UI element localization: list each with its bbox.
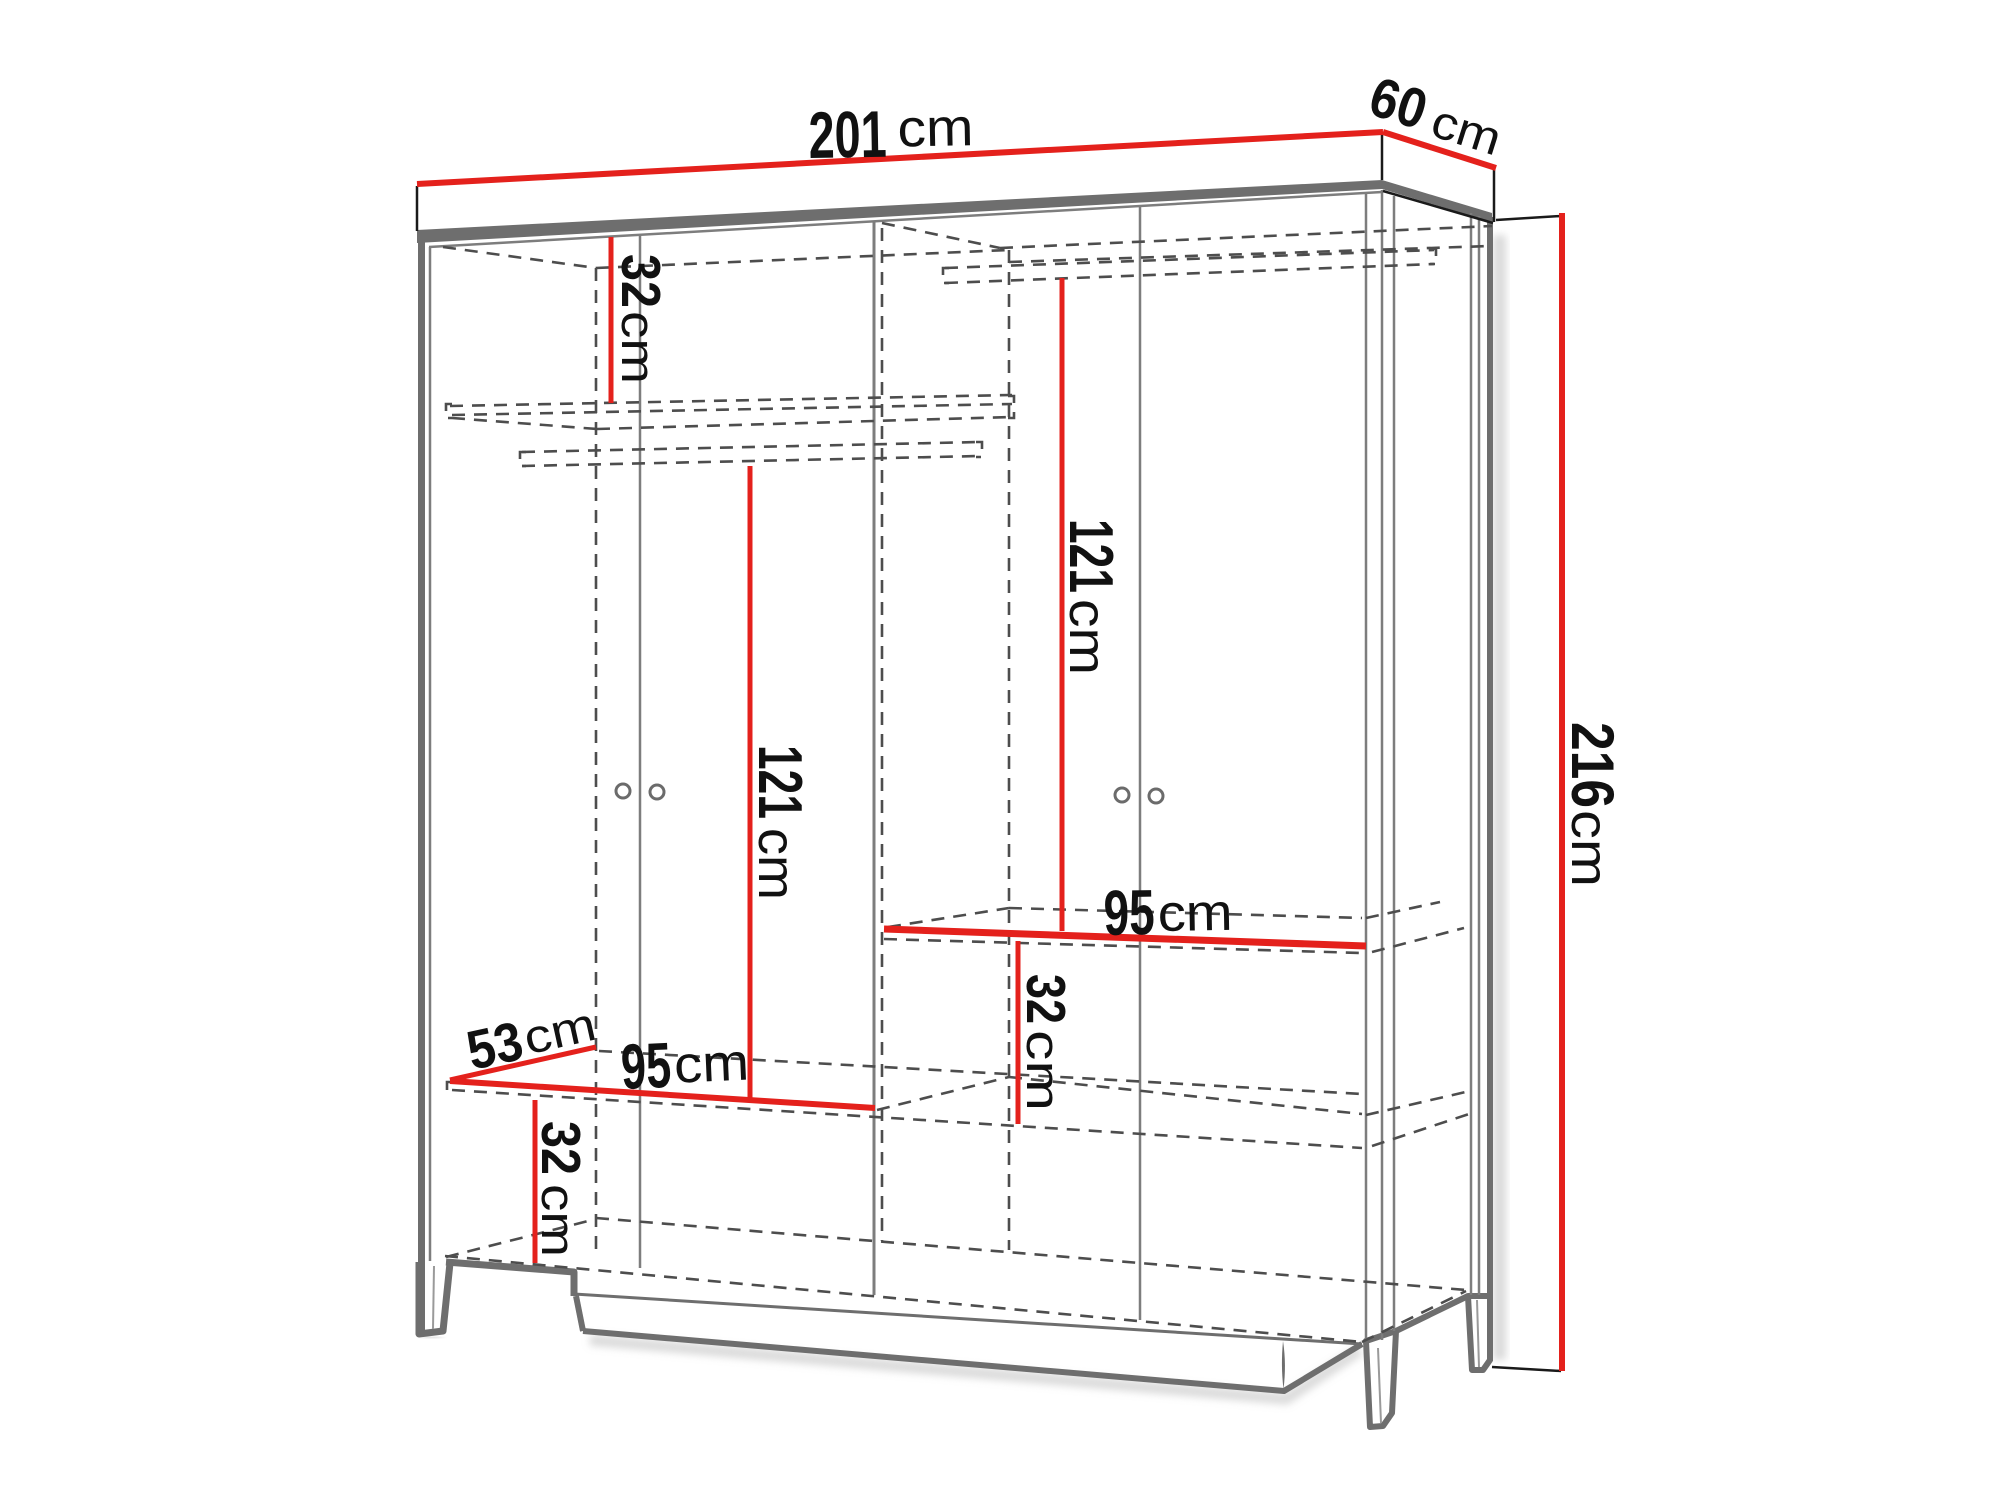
svg-text:121: 121 bbox=[1056, 519, 1125, 593]
svg-text:cm: cm bbox=[1017, 1030, 1070, 1111]
svg-text:cm: cm bbox=[1560, 810, 1618, 887]
svg-text:cm: cm bbox=[532, 1184, 585, 1257]
svg-text:32: 32 bbox=[610, 254, 672, 308]
svg-text:32: 32 bbox=[1015, 974, 1077, 1024]
svg-text:121: 121 bbox=[745, 745, 814, 819]
svg-text:216: 216 bbox=[1559, 722, 1626, 808]
svg-text:cm: cm bbox=[1058, 599, 1116, 675]
svg-text:cm: cm bbox=[1157, 884, 1233, 943]
svg-text:cm: cm bbox=[673, 1033, 750, 1094]
svg-text:32: 32 bbox=[530, 1121, 592, 1175]
svg-text:cm: cm bbox=[747, 828, 805, 900]
svg-text:95: 95 bbox=[619, 1029, 672, 1103]
svg-text:cm: cm bbox=[612, 311, 665, 384]
svg-text:cm: cm bbox=[897, 98, 974, 158]
svg-text:95: 95 bbox=[1103, 876, 1155, 949]
svg-text:201: 201 bbox=[808, 97, 887, 172]
